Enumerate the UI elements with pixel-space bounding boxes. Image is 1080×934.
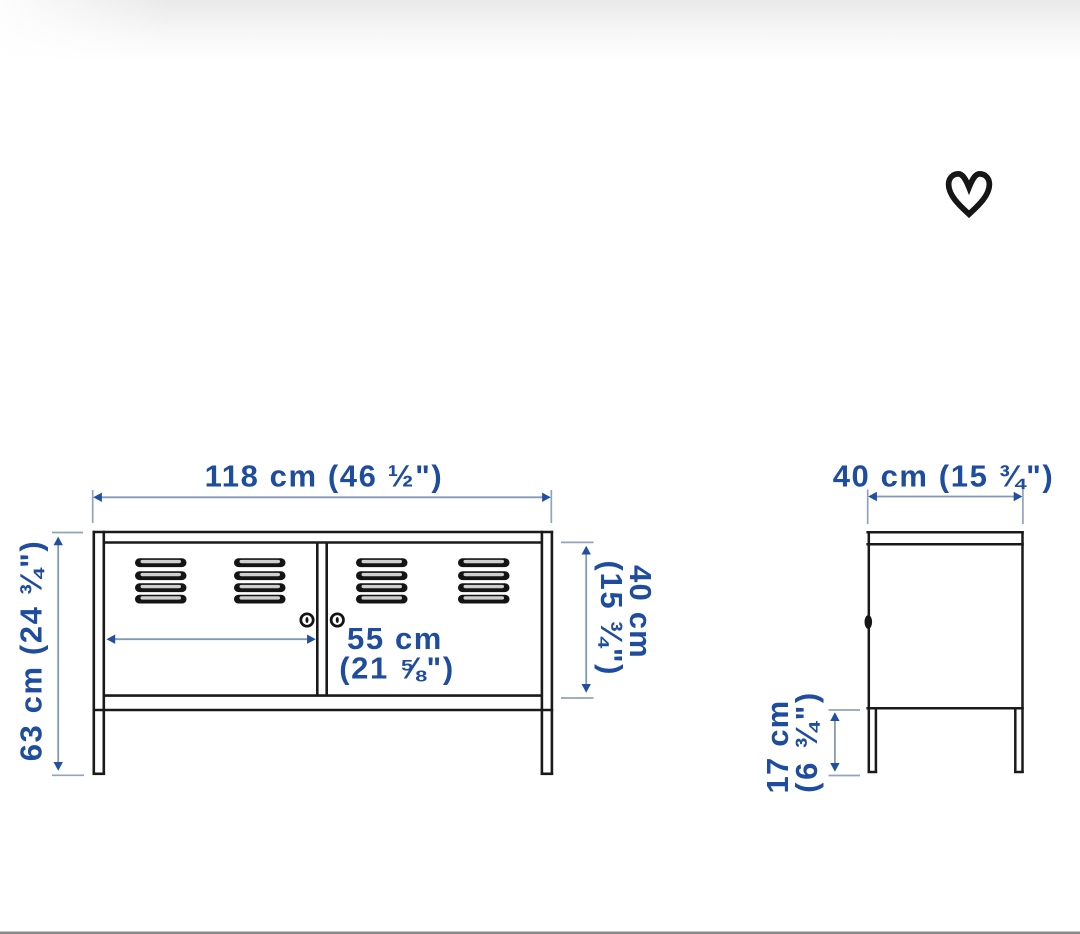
svg-text:63 cm (24 ¾"): 63 cm (24 ¾") <box>14 540 49 762</box>
svg-text:(15 ¾"): (15 ¾") <box>594 561 629 677</box>
svg-text:(6 ¾"): (6 ¾") <box>789 690 824 793</box>
svg-text:40 cm (15 ¾"): 40 cm (15 ¾") <box>833 459 1055 494</box>
svg-text:118 cm (46 ½"): 118 cm (46 ½") <box>205 459 444 494</box>
svg-text:(21 ⅝"): (21 ⅝") <box>339 651 455 686</box>
